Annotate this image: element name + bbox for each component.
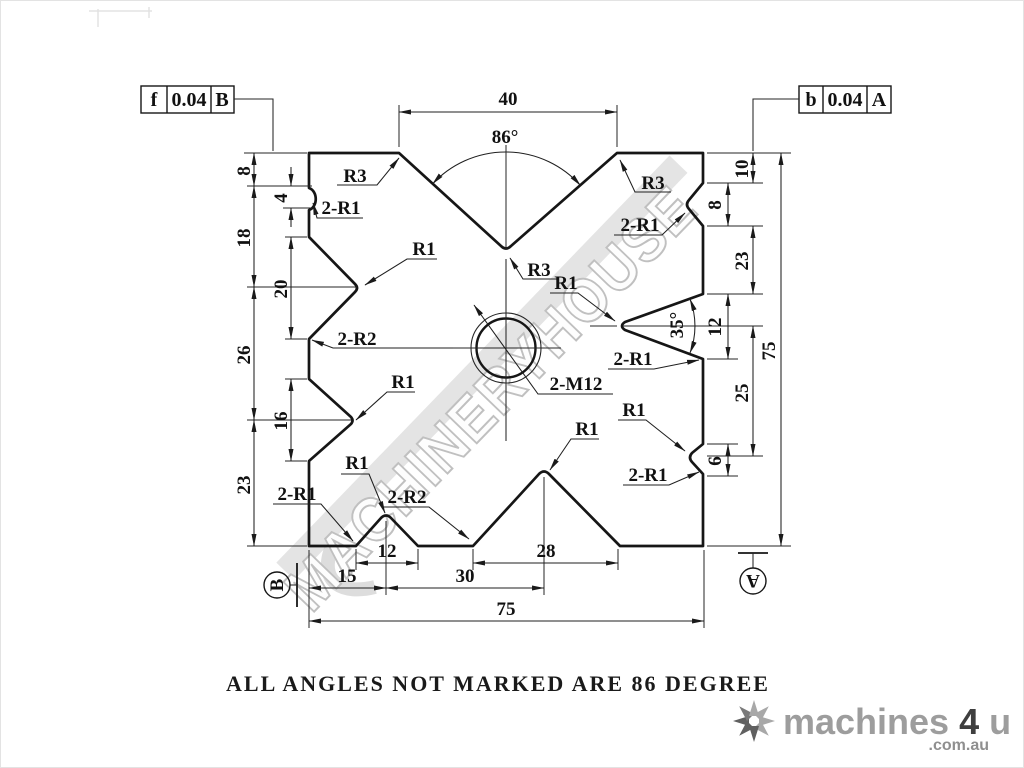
logo-wordmark: machines 4 u <box>783 701 1011 742</box>
gdt-frame-right: b 0.04 A <box>753 86 891 151</box>
gdt-left-datum: B <box>215 89 228 111</box>
dim-left-4: 4 <box>271 193 292 203</box>
dim-left-20: 20 <box>271 280 292 299</box>
dim-left-18: 18 <box>234 229 255 248</box>
label-2r1-bottom-left: 2-R1 <box>277 484 316 505</box>
dim-right-23: 23 <box>732 252 753 271</box>
dim-left-8: 8 <box>234 166 255 176</box>
dim-bottom-28: 28 <box>537 541 556 562</box>
dim-right-12: 12 <box>705 318 726 337</box>
technical-drawing: MACHINERYHOUSE <box>1 1 1024 768</box>
dim-right-8: 8 <box>705 200 726 210</box>
dim-left-26: 26 <box>234 346 255 365</box>
datum-a-letter: A <box>746 570 760 591</box>
label-r1-bottom-big: R1 <box>575 419 598 440</box>
dim-bottom-30: 30 <box>456 566 475 587</box>
label-r1-bottom-small: R1 <box>345 453 368 474</box>
drawing-note: ALL ANGLES NOT MARKED ARE 86 DEGREE <box>226 671 770 696</box>
gdt-left-symbol: f <box>151 89 158 111</box>
watermark: MACHINERYHOUSE <box>272 173 711 624</box>
label-2r2-bottom: 2-R2 <box>387 487 426 508</box>
label-thread-2m12: 2-M12 <box>550 374 603 395</box>
dim-right-25: 25 <box>732 384 753 403</box>
logo-brand: machines <box>783 701 949 742</box>
logo-four: 4 <box>959 701 979 742</box>
label-2r2-left: 2-R2 <box>337 329 376 350</box>
machines4u-logo: machines 4 u .com.au <box>733 700 1011 754</box>
datum-b-letter: B <box>267 578 288 591</box>
logo-u: u <box>989 701 1011 742</box>
label-2r1-top-right: 2-R1 <box>620 215 659 236</box>
dim-right-6: 6 <box>705 456 726 466</box>
gdt-right-datum: A <box>872 89 887 111</box>
scan-artifact-marks <box>89 7 152 27</box>
watermark-text: MACHINERYHOUSE <box>272 173 711 624</box>
dim-right-35deg: 35° <box>667 312 688 339</box>
dim-right-75: 75 <box>759 342 780 361</box>
label-r3-top-right: R3 <box>641 173 664 194</box>
dim-top-width: 40 <box>499 89 518 110</box>
dim-left-23: 23 <box>234 476 255 495</box>
label-2r1-top-left: 2-R1 <box>321 198 360 219</box>
label-r1-v1-left: R1 <box>412 239 435 260</box>
gdt-right-tolerance: 0.04 <box>828 89 863 111</box>
gdt-left-tolerance: 0.04 <box>172 89 207 111</box>
drawing-canvas: MACHINERYHOUSE <box>0 0 1024 768</box>
gdt-right-symbol: b <box>805 89 816 111</box>
label-r3-top-left: R3 <box>343 166 366 187</box>
dim-left-16: 16 <box>271 412 292 431</box>
datum-a-symbol: A <box>738 553 768 594</box>
dim-bottom-75: 75 <box>497 599 516 620</box>
dim-right-10: 10 <box>732 160 753 179</box>
label-2r1-notch-right: 2-R1 <box>628 465 667 486</box>
dim-top-angle: 86° <box>492 127 519 148</box>
label-r1-notch-right: R1 <box>622 400 645 421</box>
gdt-frame-left: f 0.04 B <box>141 86 273 151</box>
label-2r1-right: 2-R1 <box>613 349 652 370</box>
label-r1-v2-left: R1 <box>391 372 414 393</box>
logo-tld: .com.au <box>929 737 989 754</box>
label-r3-apex: R3 <box>527 260 550 281</box>
label-r1-right: R1 <box>554 273 577 294</box>
star-icon <box>733 700 775 742</box>
dim-bottom-12: 12 <box>378 541 397 562</box>
dim-bottom-15: 15 <box>338 566 357 587</box>
